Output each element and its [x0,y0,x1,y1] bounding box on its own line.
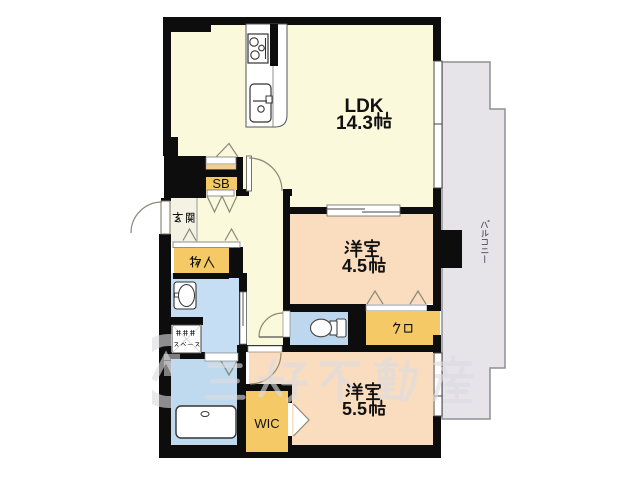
svg-text:5.5: 5.5 [342,399,367,419]
svg-text:WIC: WIC [254,416,279,431]
svg-text:14.3: 14.3 [336,113,373,134]
svg-text:4.5: 4.5 [342,256,367,276]
svg-text:SB: SB [212,176,229,191]
